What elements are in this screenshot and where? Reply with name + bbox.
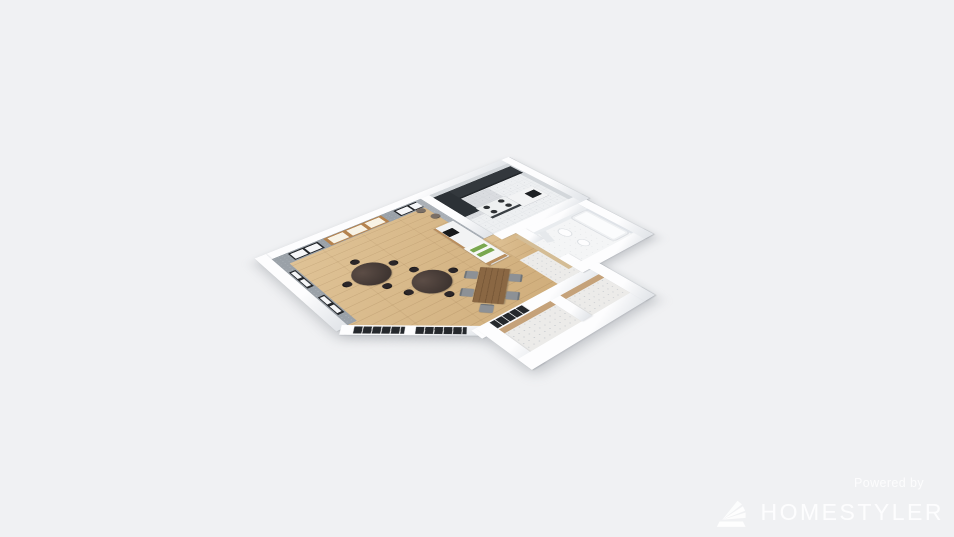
chair-gray [464,271,479,279]
floorplan-render-stage: Powered by HOMESTYLER [0,0,954,537]
brand-text: HOMESTYLER [761,499,944,526]
floor-plan-3d [255,155,727,433]
brand-row: HOMESTYLER [715,496,944,529]
chair-gray [459,288,474,297]
chair-gray [479,304,495,313]
chair-gray [509,274,523,282]
homestyler-watermark: Powered by HOMESTYLER [715,476,944,529]
homestyler-fan-icon [715,496,751,529]
chair-gray [505,291,520,300]
powered-by-text: Powered by [715,476,924,490]
cabinet-dark-inset [525,189,543,198]
chamfer-window-glazing-2 [415,327,467,334]
chamfer-window-glazing [353,326,405,333]
chamfer-exterior-wall [339,325,485,336]
